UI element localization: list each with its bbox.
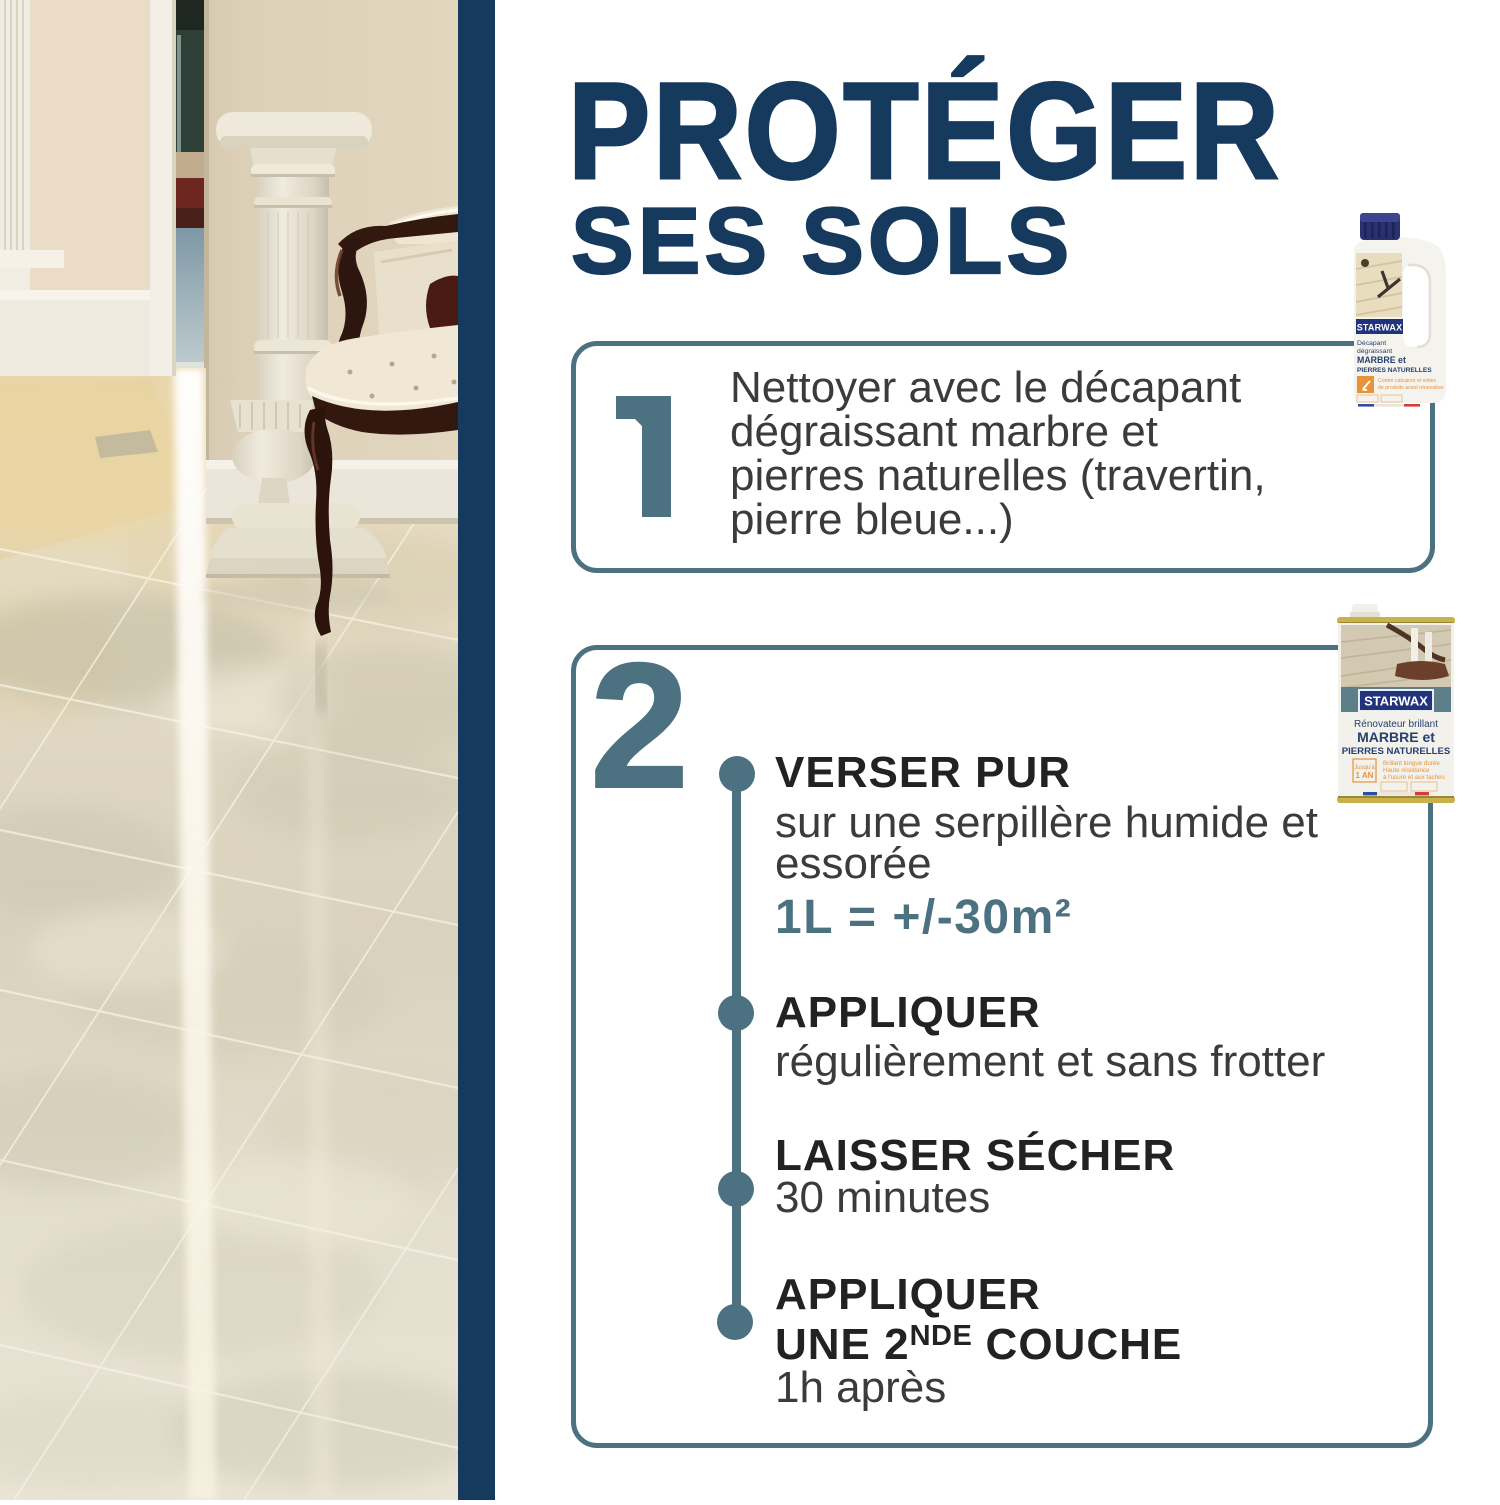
svg-text:dégraissant: dégraissant: [1357, 348, 1392, 355]
svg-text:PIERRES NATURELLES: PIERRES NATURELLES: [1342, 746, 1451, 757]
svg-text:Contre calcaires et voiles: Contre calcaires et voiles: [1378, 378, 1436, 384]
svg-text:Brillant longue durée: Brillant longue durée: [1383, 760, 1440, 767]
svg-text:1 AN: 1 AN: [1356, 771, 1374, 780]
svg-text:PIERRES NATURELLES: PIERRES NATURELLES: [1357, 367, 1432, 374]
svg-text:STARWAX: STARWAX: [1364, 694, 1428, 709]
svg-text:Décapant: Décapant: [1357, 340, 1386, 347]
svg-text:STARWAX: STARWAX: [1357, 323, 1403, 333]
svg-text:MARBRE et: MARBRE et: [1357, 729, 1435, 745]
svg-text:MARBRE et: MARBRE et: [1357, 355, 1406, 365]
svg-text:de produits avant rénovation: de produits avant rénovation: [1378, 385, 1444, 391]
svg-text:à l'usure et aux taches: à l'usure et aux taches: [1383, 774, 1445, 781]
svg-text:Haute résistance: Haute résistance: [1383, 767, 1430, 774]
